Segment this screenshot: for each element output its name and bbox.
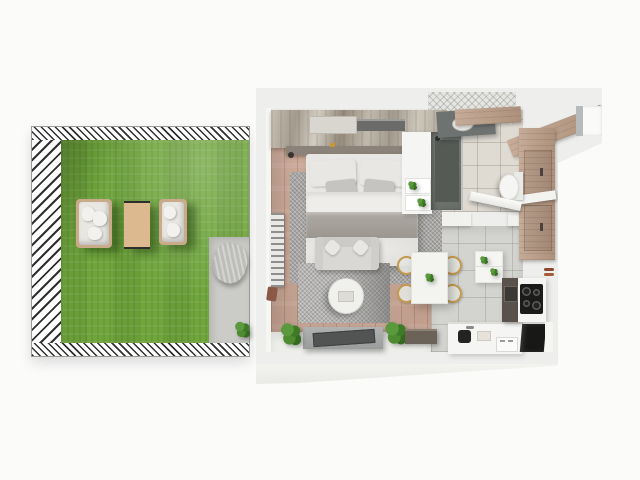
- pendant-lamp-icon: [288, 152, 294, 158]
- shower-glass: [461, 132, 463, 210]
- sofa-pillow: [93, 211, 107, 226]
- terrace-border-bottom: [32, 343, 249, 356]
- dark-sideboard: [405, 329, 437, 344]
- cooktop-counter: [518, 278, 546, 322]
- shower-tray: [435, 140, 459, 202]
- burner: [522, 287, 531, 296]
- side-chair: [266, 286, 278, 301]
- outdoor-sofa-left: [76, 199, 112, 248]
- sofa-arm: [315, 237, 323, 270]
- shelf-plant: [490, 268, 498, 276]
- wardrobe-tray: [309, 116, 357, 134]
- sofa-pillow: [88, 227, 102, 240]
- gold-lamp-mount: [330, 143, 335, 147]
- terrace-border-left: [32, 127, 61, 356]
- kitchen-counter: [448, 322, 522, 354]
- floor-plan-render: [0, 0, 640, 480]
- doorway-frame: [545, 322, 553, 352]
- cutting-board: [477, 331, 491, 341]
- dining-table: [411, 252, 448, 304]
- burner: [532, 301, 541, 310]
- door-handle-icon: [540, 168, 543, 176]
- faucet-icon: [466, 326, 474, 329]
- niche-reveal: [576, 106, 583, 136]
- terrace: [31, 126, 250, 357]
- dishwasher-handle: [508, 340, 513, 342]
- table-decor: [338, 291, 354, 302]
- door-handle-icon: [540, 223, 543, 231]
- shower: [431, 132, 463, 210]
- shelf-plant: [417, 198, 426, 207]
- outdoor-coffee-table: [124, 201, 150, 249]
- window-niche: [576, 106, 602, 136]
- dishwasher-handle: [500, 340, 505, 342]
- dishwasher: [496, 337, 518, 352]
- induction-hob: [520, 284, 543, 314]
- outdoor-sofa-right: [159, 199, 187, 245]
- radiator: [271, 213, 284, 287]
- sofa-arm: [371, 237, 379, 270]
- oven-column: [502, 278, 518, 322]
- utensil-rail: [544, 273, 554, 276]
- wood-door: [524, 205, 552, 251]
- sofa-pillow: [164, 206, 176, 219]
- apartment-outer-wall-bottom: [256, 363, 558, 384]
- living-sofa: [315, 237, 379, 270]
- wood-door: [524, 150, 552, 196]
- burner: [533, 289, 540, 296]
- floor-plant-left: [281, 322, 301, 346]
- toilet-bowl: [499, 174, 519, 200]
- shelf-plant: [480, 256, 488, 264]
- bed-blanket: [306, 212, 418, 238]
- entrance-doorway: [520, 324, 546, 352]
- shelf-plant: [408, 181, 417, 190]
- sofa-pillow: [167, 223, 180, 237]
- utensil-rail: [544, 268, 554, 271]
- patio-plant: [235, 321, 250, 338]
- burner: [523, 300, 530, 307]
- table-centerpiece: [425, 273, 434, 282]
- wardrobe-panel: [357, 119, 405, 131]
- kitchen-sink: [458, 330, 471, 343]
- round-coffee-table: [328, 278, 364, 314]
- hall-cabinet: [402, 132, 432, 214]
- terrace-border-top: [32, 127, 249, 140]
- floor-plant-right: [385, 321, 407, 345]
- shelf-line: [476, 266, 502, 267]
- oven-door: [504, 286, 518, 302]
- apartment: [256, 88, 602, 364]
- dining-wall-shelf: [475, 251, 503, 283]
